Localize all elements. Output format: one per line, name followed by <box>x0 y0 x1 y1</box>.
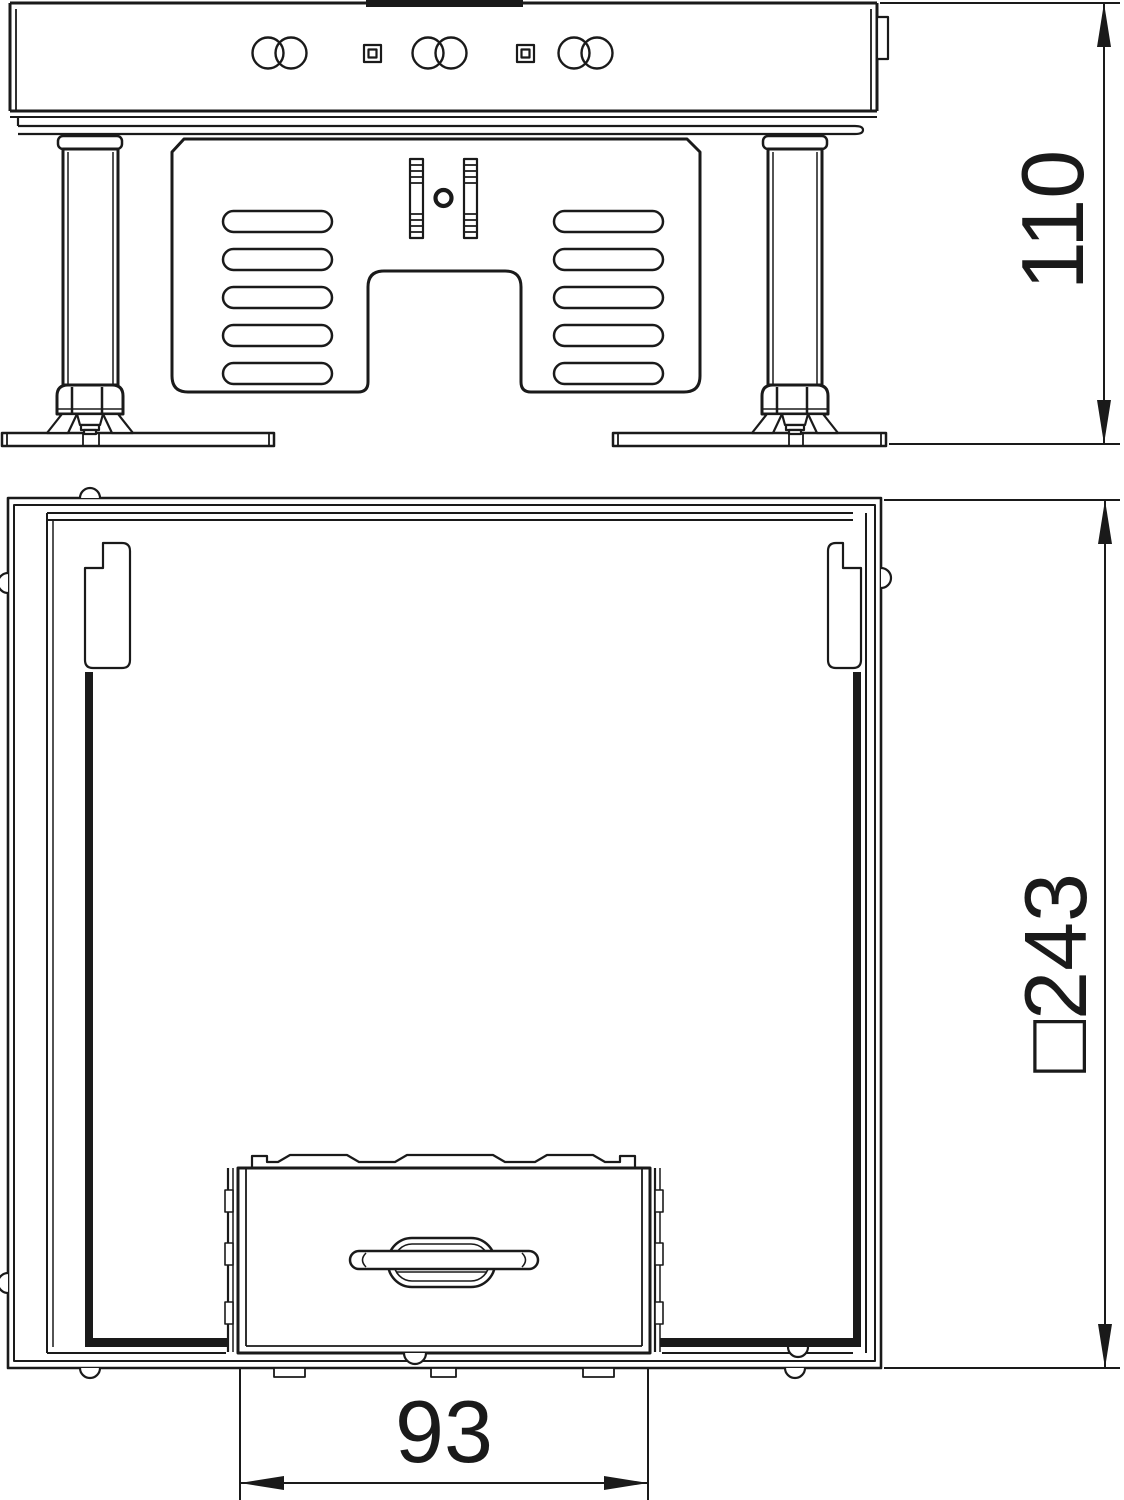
clamp-rail-right <box>464 159 477 238</box>
bracket-screw-hole <box>436 190 452 206</box>
clamp-rail-left <box>410 159 423 238</box>
bump-inner-bottom <box>788 1347 808 1357</box>
arrowhead-left <box>240 1476 284 1490</box>
dimension-label-93: 93 <box>395 1382 493 1481</box>
arrowhead-right <box>604 1476 648 1490</box>
arrowhead-down <box>1097 400 1111 444</box>
drawer-back-strip <box>252 1155 635 1168</box>
drawer-bottom-tabs <box>274 1368 614 1377</box>
drawer-rail-right <box>655 1168 663 1352</box>
floorbox-technical-drawing: 110 □243 93 <box>0 0 1124 1500</box>
leg-tube-left <box>63 149 118 385</box>
base-plate-right <box>613 433 886 446</box>
cassette-drawer <box>225 1155 663 1353</box>
frame-upper-lip <box>18 117 863 134</box>
technical-drawing-page: 110 □243 93 <box>0 0 1124 1500</box>
swivel-washer-left <box>47 414 133 434</box>
leg-tube-right <box>768 149 822 385</box>
arrowhead-up <box>1098 500 1112 544</box>
arrowhead-up <box>1097 3 1111 47</box>
side-flange-tab <box>877 17 888 59</box>
handle-bar <box>350 1251 538 1269</box>
bump-left-edge-top <box>0 573 8 593</box>
swivel-washer-right <box>752 414 838 434</box>
plan-view <box>0 488 1120 1500</box>
base-plate-left <box>2 433 274 446</box>
cover-plate <box>10 0 888 117</box>
mounting-bracket <box>172 139 700 392</box>
arrowhead-down <box>1098 1324 1112 1368</box>
latch-right <box>828 543 861 668</box>
bump-right-edge-top <box>881 568 891 588</box>
bump-left-edge-bottom <box>0 1273 8 1293</box>
drawer-rail-left <box>225 1168 233 1352</box>
latch-left <box>85 543 130 668</box>
dimension-label-110: 110 <box>1003 150 1102 290</box>
bump-bottom-edge-left <box>80 1368 100 1378</box>
bump-bottom-edge-right <box>785 1368 805 1378</box>
leg-cap-left <box>58 136 122 149</box>
cover-plate-top-strip <box>366 0 523 7</box>
dimension-label-square-243: □243 <box>1006 873 1105 1073</box>
leg-cap-right <box>763 136 827 149</box>
bump-drawer-bottom <box>404 1353 426 1364</box>
side-elevation-view <box>2 0 1120 446</box>
bump-top-edge <box>80 488 100 498</box>
